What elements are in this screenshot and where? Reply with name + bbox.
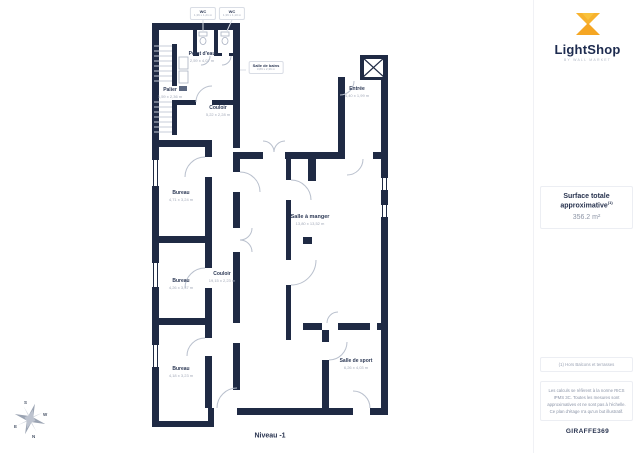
room-dims: 4,18 x 3,23 m	[169, 373, 193, 378]
callout-salle-de-bains: Salle de bains 3,89 x 2,36 m	[249, 61, 284, 74]
room-dims: 4,26 x 3,37 m	[169, 285, 193, 290]
brand-tagline: BY WALL MARKET	[534, 58, 640, 62]
room-label-couloir-vertical: Couloir 19,15 x 2,23 m	[209, 271, 235, 283]
level-label: Niveau -1	[254, 433, 285, 440]
surface-total-box: Surface totale approximative(1) 356.2 m²	[540, 186, 633, 229]
floor-plan-page: WC 1,36 x 1,21 m WC 1,36 x 1,10 m Salle …	[0, 0, 640, 453]
room-label-bureau-1: Bureau 4,71 x 3,24 m	[169, 190, 193, 202]
brand-block: LightShop BY WALL MARKET	[534, 12, 640, 62]
room-dims: 2,59 x 4,07 m	[189, 58, 216, 63]
elevator-icon	[362, 57, 385, 78]
compass-west: W	[43, 412, 48, 417]
room-name: Couloir	[206, 105, 230, 112]
room-dims: 5,22 x 2,28 m	[206, 112, 230, 117]
room-name: Bureau	[169, 190, 193, 197]
room-label-bureau-2: Bureau 4,26 x 3,37 m	[169, 278, 193, 290]
room-label-salle-de-sport: Salle de sport 6,26 x 4,03 m	[340, 358, 373, 370]
compass-south: S	[24, 400, 27, 405]
info-sidebar: LightShop BY WALL MARKET Surface totale …	[533, 0, 640, 453]
room-name: Point d'eau	[189, 51, 216, 58]
compass-east: E	[14, 424, 17, 429]
callout-wc-1: WC 1,36 x 1,21 m	[190, 7, 216, 20]
surface-title-text: Surface totale approximative	[560, 193, 609, 209]
room-label-bureau-3: Bureau 4,18 x 3,23 m	[169, 366, 193, 378]
room-dims: 6,26 x 4,03 m	[340, 365, 373, 370]
room-dims: 3,89 x 2,36 m	[253, 68, 280, 72]
room-dims: 1,36 x 1,10 m	[223, 14, 241, 18]
room-label-point-deau: Point d'eau 2,59 x 4,07 m	[189, 51, 216, 63]
brand-name: LightShop	[534, 42, 640, 57]
room-label-palier: Palier 1,59 x 2,36 m	[158, 87, 182, 99]
room-dims: 4,40 x 1,99 m	[345, 93, 369, 98]
room-label-salle-a-manger: Salle à manger 13,80 x 13,52 m	[291, 214, 330, 226]
room-label-couloir-haut: Couloir 5,22 x 2,28 m	[206, 105, 230, 117]
room-name: Bureau	[169, 278, 193, 285]
room-name: Salle de sport	[340, 358, 373, 365]
room-dims: 4,71 x 3,24 m	[169, 197, 193, 202]
lightshop-logo-icon	[574, 12, 602, 36]
callout-wc-2: WC 1,36 x 1,10 m	[219, 7, 245, 20]
surface-superscript: (1)	[608, 200, 613, 205]
room-dims: 19,15 x 2,23 m	[209, 278, 235, 283]
footnote-box: (1) Hors Balcons et terrasses	[540, 357, 633, 372]
room-name: Bureau	[169, 366, 193, 373]
disclaimer-box: Les calculs se réfèrent à la norme RICS …	[540, 381, 633, 421]
compass-rose-icon: S W E N	[8, 394, 54, 444]
room-label-entree: Entrée 4,40 x 1,99 m	[345, 86, 369, 98]
room-dims: 1,59 x 2,36 m	[158, 94, 182, 99]
surface-title: Surface totale approximative(1)	[543, 193, 630, 209]
room-name: Salle à manger	[291, 214, 330, 221]
surface-value: 356.2 m²	[543, 214, 630, 221]
compass-north: N	[32, 434, 35, 439]
room-dims: 1,36 x 1,21 m	[194, 14, 212, 18]
plan-reference: GIRAFFE369	[534, 428, 640, 435]
room-dims: 13,80 x 13,52 m	[291, 221, 330, 226]
